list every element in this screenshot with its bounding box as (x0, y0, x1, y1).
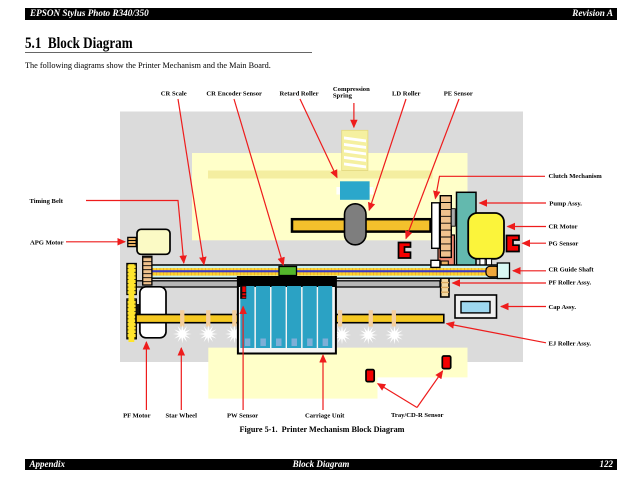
svg-text:Tray/CD-R Sensor: Tray/CD-R Sensor (391, 412, 444, 419)
svg-text:PF Motor: PF Motor (123, 413, 150, 420)
svg-text:Clutch Mechanism: Clutch Mechanism (549, 173, 603, 180)
svg-text:Timing Belt: Timing Belt (30, 198, 64, 205)
svg-text:CR Guide Shaft: CR Guide Shaft (549, 267, 595, 274)
svg-text:Figure 5-1. Printer Mechanism: Figure 5-1. Printer Mechanism Block Diag… (239, 425, 404, 434)
svg-text:PE Sensor: PE Sensor (444, 91, 473, 98)
svg-text:PW Sensor: PW Sensor (227, 413, 258, 420)
svg-text:LD Roller: LD Roller (392, 91, 420, 98)
svg-text:Retard Roller: Retard Roller (280, 91, 319, 98)
svg-text:CR Encoder Sensor: CR Encoder Sensor (206, 91, 262, 98)
svg-text:Carriage Unit: Carriage Unit (305, 413, 345, 420)
svg-text:EJ Roller Assy.: EJ Roller Assy. (549, 341, 592, 348)
svg-text:Pump Assy.: Pump Assy. (549, 201, 582, 208)
svg-text:Spring: Spring (333, 93, 353, 100)
svg-text:CR Motor: CR Motor (549, 224, 578, 231)
svg-text:PG Sensor: PG Sensor (549, 240, 579, 247)
svg-text:Cap Assy.: Cap Assy. (549, 304, 577, 311)
svg-text:CR Scale: CR Scale (161, 91, 187, 98)
svg-text:PF Roller Assy.: PF Roller Assy. (549, 280, 592, 287)
svg-text:APG Motor: APG Motor (30, 239, 64, 246)
svg-text:Star Wheel: Star Wheel (166, 413, 198, 420)
